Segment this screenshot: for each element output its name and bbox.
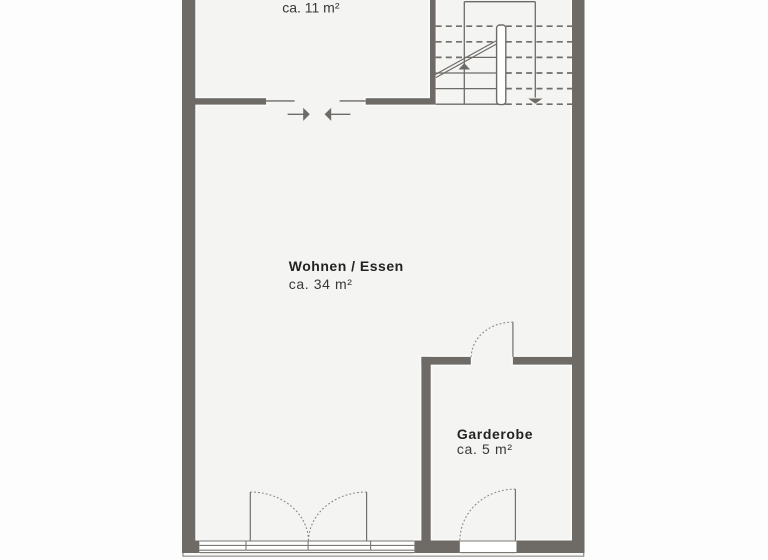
svg-text:ca. 34 m²: ca. 34 m² (289, 276, 353, 292)
svg-text:Wohnen / Essen: Wohnen / Essen (289, 258, 404, 274)
svg-text:ca. 11 m²: ca. 11 m² (282, 0, 340, 16)
svg-text:Garderobe: Garderobe (457, 426, 533, 442)
svg-text:ca. 5 m²: ca. 5 m² (457, 441, 513, 457)
